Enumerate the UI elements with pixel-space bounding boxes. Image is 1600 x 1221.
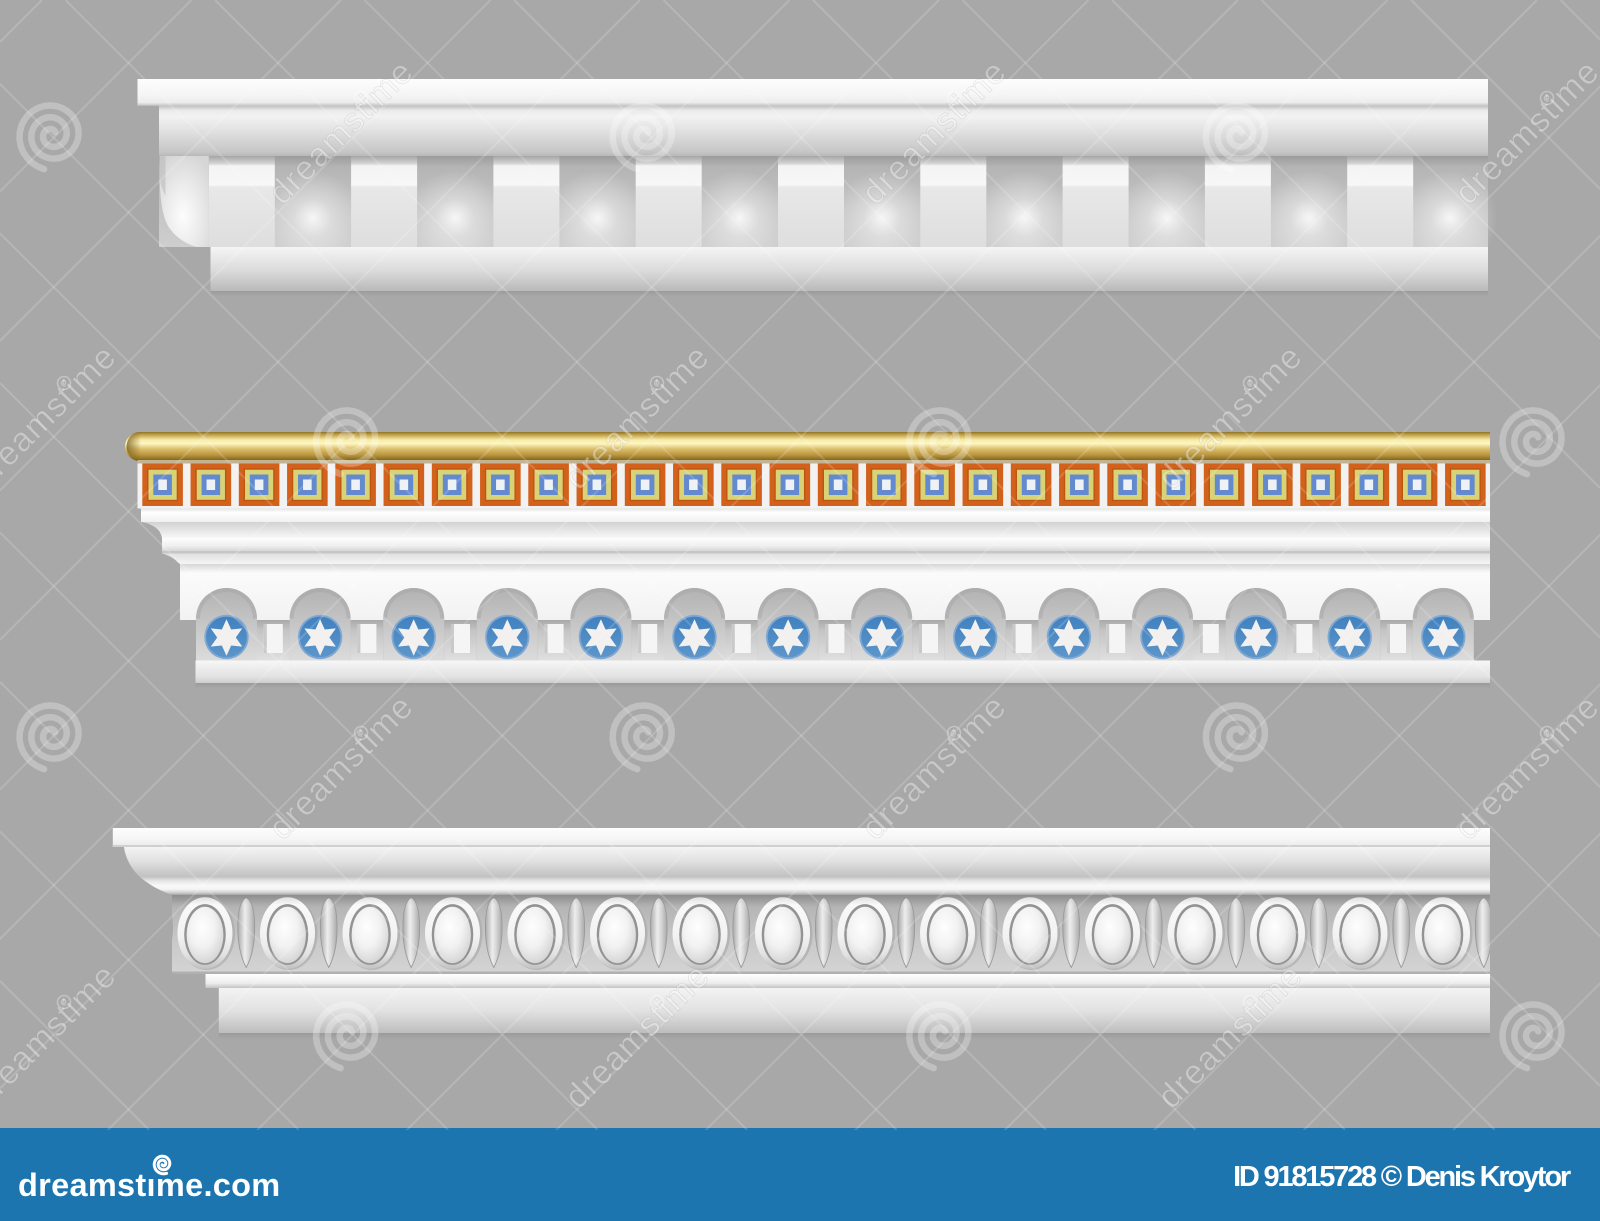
svg-text:ID 91815728 © Denis Kroytor: ID 91815728 © Denis Kroytor [1233, 1161, 1571, 1193]
svg-text:dreamstıme.com: dreamstıme.com [18, 1167, 281, 1203]
